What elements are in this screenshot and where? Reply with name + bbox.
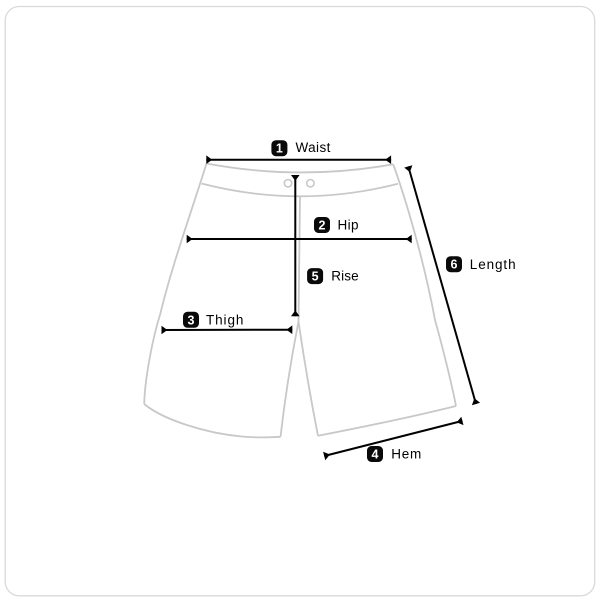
svg-text:Hem: Hem (391, 446, 422, 461)
svg-text:Thigh: Thigh (206, 312, 244, 327)
svg-text:Rise: Rise (331, 269, 359, 284)
svg-text:2: 2 (319, 219, 326, 233)
svg-text:Length: Length (470, 257, 517, 272)
svg-text:6: 6 (451, 258, 458, 272)
svg-text:Waist: Waist (296, 140, 331, 155)
svg-text:1: 1 (276, 142, 283, 156)
svg-text:3: 3 (188, 313, 195, 327)
svg-text:Hip: Hip (338, 218, 359, 233)
svg-text:4: 4 (372, 448, 379, 462)
svg-text:5: 5 (312, 270, 319, 284)
